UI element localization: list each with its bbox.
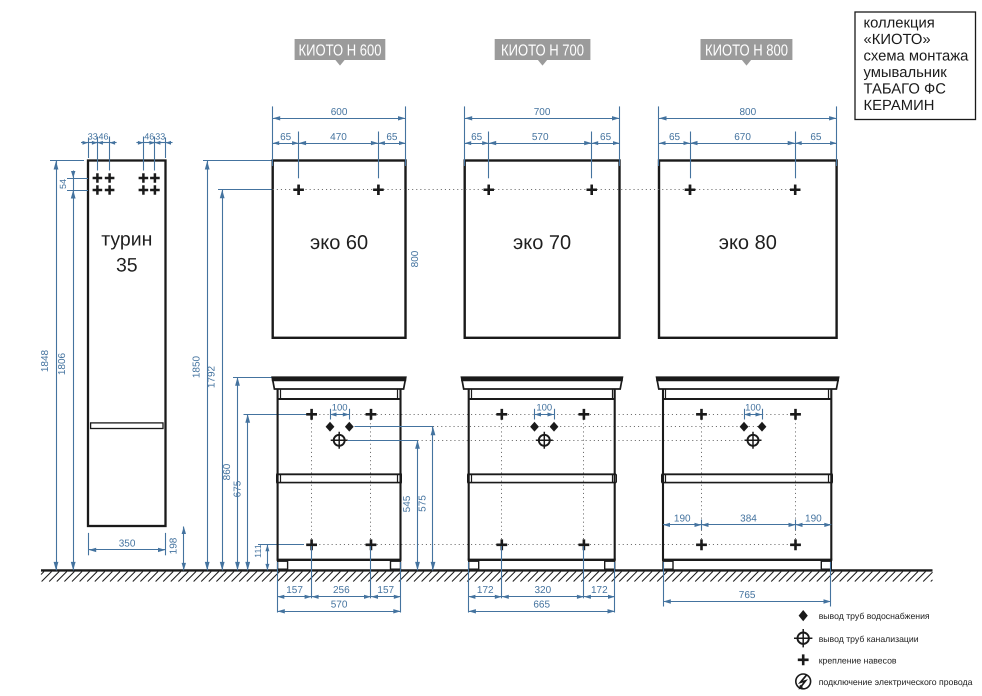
svg-text:крепление навесов: крепление навесов bbox=[819, 655, 897, 665]
svg-text:1806: 1806 bbox=[57, 352, 68, 375]
svg-text:35: 35 bbox=[116, 254, 138, 276]
svg-text:100: 100 bbox=[536, 402, 552, 413]
svg-text:65: 65 bbox=[471, 132, 483, 143]
svg-text:эко 70: эко 70 bbox=[513, 232, 571, 254]
svg-text:111: 111 bbox=[253, 544, 263, 558]
svg-text:«КИОТО»: «КИОТО» bbox=[864, 32, 931, 48]
svg-text:КИОТО Н 600: КИОТО Н 600 bbox=[299, 42, 382, 59]
svg-text:1848: 1848 bbox=[40, 349, 51, 372]
svg-text:КИОТО Н 700: КИОТО Н 700 bbox=[501, 42, 584, 59]
svg-text:65: 65 bbox=[386, 132, 398, 143]
svg-text:665: 665 bbox=[533, 600, 550, 611]
svg-text:384: 384 bbox=[740, 513, 757, 524]
svg-text:190: 190 bbox=[805, 513, 822, 524]
svg-text:33: 33 bbox=[155, 132, 165, 142]
svg-text:коллекция: коллекция bbox=[864, 16, 935, 32]
svg-text:65: 65 bbox=[280, 132, 292, 143]
svg-text:172: 172 bbox=[591, 585, 608, 596]
svg-text:100: 100 bbox=[332, 402, 348, 413]
svg-text:эко 60: эко 60 bbox=[310, 232, 368, 254]
svg-text:600: 600 bbox=[331, 107, 348, 118]
svg-text:1850: 1850 bbox=[192, 355, 203, 378]
svg-text:вывод труб канализации: вывод труб канализации bbox=[819, 634, 919, 644]
svg-text:схема монтажа: схема монтажа bbox=[864, 49, 970, 65]
svg-text:570: 570 bbox=[532, 132, 549, 143]
svg-text:800: 800 bbox=[739, 107, 756, 118]
svg-text:256: 256 bbox=[333, 585, 350, 596]
svg-text:33: 33 bbox=[88, 132, 98, 142]
svg-text:вывод труб водоснабжения: вывод труб водоснабжения bbox=[819, 611, 930, 621]
svg-text:190: 190 bbox=[674, 513, 691, 524]
svg-text:545: 545 bbox=[402, 495, 413, 512]
svg-text:320: 320 bbox=[535, 585, 552, 596]
svg-text:800: 800 bbox=[410, 250, 421, 267]
svg-text:172: 172 bbox=[477, 585, 494, 596]
svg-text:КЕРАМИН: КЕРАМИН bbox=[864, 98, 935, 114]
svg-text:54: 54 bbox=[58, 179, 68, 189]
svg-text:46: 46 bbox=[98, 132, 108, 142]
svg-text:65: 65 bbox=[810, 132, 822, 143]
svg-text:700: 700 bbox=[534, 107, 551, 118]
svg-text:470: 470 bbox=[330, 132, 347, 143]
svg-text:46: 46 bbox=[144, 132, 154, 142]
svg-text:575: 575 bbox=[418, 495, 429, 512]
svg-text:350: 350 bbox=[119, 538, 136, 549]
svg-text:КИОТО Н 800: КИОТО Н 800 bbox=[705, 42, 788, 59]
svg-text:1792: 1792 bbox=[207, 365, 218, 388]
svg-text:умывальник: умывальник bbox=[864, 65, 948, 81]
svg-text:турин: турин bbox=[101, 229, 152, 251]
svg-text:198: 198 bbox=[168, 537, 179, 554]
svg-text:65: 65 bbox=[669, 132, 681, 143]
svg-text:765: 765 bbox=[739, 590, 756, 601]
svg-text:подключение электрического про: подключение электрического провода bbox=[819, 677, 973, 687]
svg-text:860: 860 bbox=[222, 463, 233, 480]
svg-text:ТАБАГО ФС: ТАБАГО ФС bbox=[864, 82, 947, 98]
svg-text:670: 670 bbox=[734, 132, 751, 143]
svg-text:675: 675 bbox=[232, 480, 243, 497]
svg-text:65: 65 bbox=[600, 132, 612, 143]
svg-text:100: 100 bbox=[745, 402, 761, 413]
svg-text:эко 80: эко 80 bbox=[719, 232, 777, 254]
svg-text:570: 570 bbox=[331, 600, 348, 611]
svg-text:157: 157 bbox=[286, 585, 303, 596]
svg-text:157: 157 bbox=[377, 585, 394, 596]
